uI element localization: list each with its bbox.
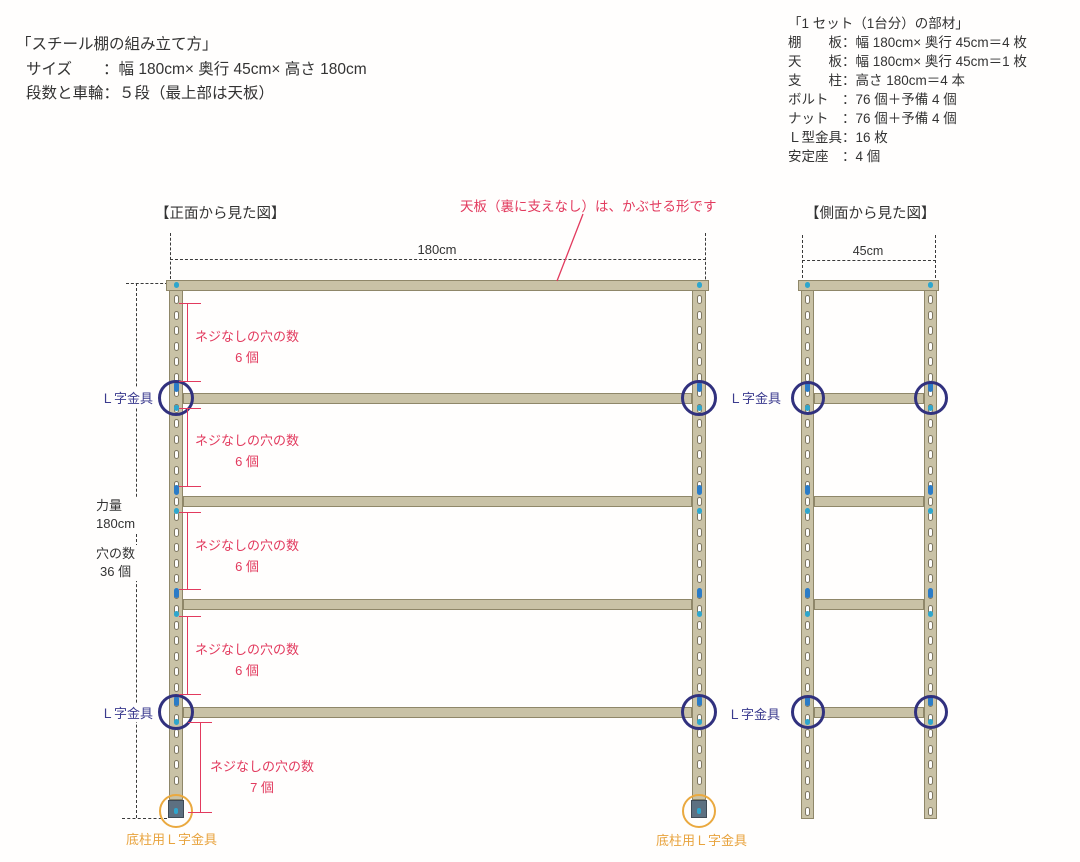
bracket-tick: [179, 694, 201, 695]
front-post-slot: [697, 466, 702, 475]
front-bolt-lower: [697, 611, 702, 617]
front-bolt-lower: [174, 508, 179, 514]
side-post-slot: [805, 311, 810, 320]
tier-spec-line: 段数と車輪：５段（最上部は天板）: [26, 82, 274, 106]
side-post-slot: [805, 543, 810, 552]
side-post-slot: [805, 326, 810, 335]
front-post-slot: [697, 621, 702, 630]
front-post-slot: [174, 326, 179, 335]
hole-count-bracket: [187, 408, 188, 486]
side-post-slot: [805, 729, 810, 738]
front-shelf-board: [183, 393, 692, 404]
front-post-slot: [697, 652, 702, 661]
parts-list-item: 支 柱：高さ 180cm＝4 本: [788, 71, 1027, 90]
l-bracket-circle: [791, 381, 825, 415]
bracket-tick: [188, 812, 212, 813]
front-view-heading: 【正面から見た図】: [155, 202, 286, 223]
bracket-tick: [179, 303, 201, 304]
front-post-slot: [174, 745, 179, 754]
side-post-slot: [805, 791, 810, 800]
side-post-slot: [805, 652, 810, 661]
side-top-bolt: [928, 282, 933, 288]
side-post-slot: [928, 636, 933, 645]
front-post-slot: [174, 760, 179, 769]
front-post-slot: [697, 729, 702, 738]
front-post-slot: [697, 357, 702, 366]
front-post-slot: [174, 559, 179, 568]
front-post-slot: [697, 636, 702, 645]
hole-count-note: ネジなしの穴の数6 個: [195, 430, 299, 472]
front-post-slot: [174, 683, 179, 692]
front-bolt-upper: [697, 588, 702, 598]
hole-count-note: ネジなしの穴の数6 個: [195, 535, 299, 577]
l-bracket-circle: [158, 380, 194, 416]
side-post-slot: [805, 419, 810, 428]
side-post-slot: [928, 466, 933, 475]
side-post-slot: [928, 729, 933, 738]
side-view-heading: 【側面から見た図】: [805, 202, 936, 223]
side-post-slot: [805, 528, 810, 537]
side-post-slot: [928, 807, 933, 816]
side-post-slot: [928, 559, 933, 568]
side-post-slot: [805, 636, 810, 645]
side-width-dim-line: [802, 260, 936, 261]
hole-count-value: 6 個: [195, 347, 299, 368]
side-post-slot: [805, 776, 810, 785]
side-post-slot: [805, 667, 810, 676]
parts-list-item: ナット ：76 個＋予備 4 個: [788, 109, 1027, 128]
l-bracket-circle: [914, 381, 948, 415]
side-post-slot: [928, 311, 933, 320]
side-bolt-lower: [805, 508, 810, 514]
parts-list-item: 天 板：幅 180cm× 奥行 45cm＝1 枚: [788, 52, 1027, 71]
side-post-slot: [928, 357, 933, 366]
front-post-slot: [174, 419, 179, 428]
front-post-slot: [697, 435, 702, 444]
page-title: 「スチール棚の組み立て方」: [16, 33, 218, 57]
front-bolt-lower: [174, 611, 179, 617]
side-post-slot: [805, 295, 810, 304]
side-shelf-board: [814, 496, 924, 507]
side-post-slot: [928, 497, 933, 506]
front-width-label: 180cm: [417, 242, 456, 257]
bracket-tick: [179, 512, 201, 513]
bracket-tick: [179, 381, 201, 382]
front-post-slot: [697, 342, 702, 351]
side-post-slot: [928, 326, 933, 335]
assembly-instructions-sheet: ネジなしの穴の数6 個ネジなしの穴の数6 個ネジなしの穴の数6 個ネジなしの穴の…: [0, 0, 1080, 862]
front-shelf-board: [183, 599, 692, 610]
front-post-slot: [697, 295, 702, 304]
top-board-note: 天板（裏に支えなし）は、かぶせる形です: [460, 195, 717, 215]
l-bracket-circle: [681, 380, 717, 416]
side-width-label: 45cm: [853, 244, 884, 258]
base-bracket-label: 底柱用Ｌ字金具: [126, 829, 217, 848]
side-post-slot: [928, 450, 933, 459]
foot-circle: [682, 794, 716, 828]
l-bracket-circle: [681, 694, 717, 730]
side-post-slot: [805, 760, 810, 769]
front-post-slot: [174, 357, 179, 366]
front-dim-ext-left: [170, 233, 171, 279]
front-post-slot: [697, 683, 702, 692]
front-bolt-upper: [174, 485, 179, 495]
front-post-slot: [174, 295, 179, 304]
front-post-slot: [174, 497, 179, 506]
front-top-board: [166, 280, 709, 291]
side-post-slot: [928, 683, 933, 692]
side-post-slot: [928, 791, 933, 800]
side-post-slot: [805, 559, 810, 568]
front-post-slot: [174, 342, 179, 351]
l-bracket-label: Ｌ字金具: [727, 704, 781, 723]
side-top-board: [798, 280, 939, 291]
height-dim-label: 力量 180cm: [94, 497, 137, 533]
front-post-slot: [697, 745, 702, 754]
front-post-slot: [174, 667, 179, 676]
front-post-slot: [174, 528, 179, 537]
front-post-slot: [697, 776, 702, 785]
parts-list-item: 安定座 ：4 個: [788, 147, 1027, 166]
front-post-slot: [174, 652, 179, 661]
front-post-slot: [697, 667, 702, 676]
side-post-slot: [805, 435, 810, 444]
front-post-slot: [174, 636, 179, 645]
side-top-bolt: [805, 282, 810, 288]
l-bracket-circle: [914, 695, 948, 729]
side-bolt-lower: [805, 611, 810, 617]
hole-count-note: ネジなしの穴の数6 個: [195, 639, 299, 681]
side-post-slot: [928, 760, 933, 769]
side-shelf-board: [814, 707, 924, 718]
side-shelf-board: [814, 393, 924, 404]
side-post-slot: [805, 357, 810, 366]
front-post-slot: [697, 528, 702, 537]
front-post-slot: [697, 559, 702, 568]
front-post-slot: [697, 326, 702, 335]
front-bolt-upper: [174, 588, 179, 598]
front-post-slot: [174, 574, 179, 583]
side-post-slot: [928, 667, 933, 676]
side-post-slot: [805, 574, 810, 583]
front-post-slot: [697, 574, 702, 583]
front-shelf-board: [183, 707, 692, 718]
l-bracket-circle: [791, 695, 825, 729]
hole-count-value: 6 個: [195, 451, 299, 472]
side-shelf-board: [814, 599, 924, 610]
l-bracket-label: Ｌ字金具: [100, 703, 154, 722]
side-bolt-upper: [928, 485, 933, 495]
side-post-slot: [928, 295, 933, 304]
bracket-tick: [188, 722, 212, 723]
side-post-slot: [928, 435, 933, 444]
foot-circle: [159, 794, 193, 828]
side-post-slot: [805, 807, 810, 816]
front-bolt-upper: [697, 485, 702, 495]
side-post-slot: [805, 466, 810, 475]
side-post-slot: [928, 745, 933, 754]
hole-count-value: 7 個: [210, 777, 314, 798]
front-top-bolt: [174, 282, 179, 288]
l-bracket-label: Ｌ字金具: [728, 388, 782, 407]
front-bolt-lower: [697, 508, 702, 514]
bracket-tick: [179, 589, 201, 590]
height-dim-top-tick: [126, 283, 168, 284]
bracket-tick: [179, 486, 201, 487]
side-post-slot: [805, 450, 810, 459]
front-post-slot: [174, 311, 179, 320]
front-post-slot: [174, 466, 179, 475]
hole-count-note: ネジなしの穴の数6 個: [195, 326, 299, 368]
hole-count-bracket: [200, 722, 201, 812]
side-post-slot: [805, 621, 810, 630]
side-bolt-upper: [805, 588, 810, 598]
side-bolt-lower: [928, 508, 933, 514]
side-post-slot: [928, 543, 933, 552]
side-post-slot: [928, 652, 933, 661]
front-post-slot: [697, 450, 702, 459]
front-post-slot: [174, 543, 179, 552]
side-post-slot: [928, 776, 933, 785]
front-shelf-board: [183, 496, 692, 507]
front-post-slot: [174, 621, 179, 630]
side-post-slot: [805, 497, 810, 506]
side-post-slot: [928, 419, 933, 428]
front-post-slot: [697, 760, 702, 769]
parts-list-item: ボルト ：76 個＋予備 4 個: [788, 90, 1027, 109]
parts-list-item: 棚 板：幅 180cm× 奥行 45cm＝4 枚: [788, 33, 1027, 52]
hole-count-note: ネジなしの穴の数7 個: [210, 756, 314, 798]
front-post-slot: [697, 311, 702, 320]
side-post-slot: [805, 745, 810, 754]
parts-list-item: Ｌ型金具：16 枚: [788, 128, 1027, 147]
front-post-slot: [697, 497, 702, 506]
front-post-slot: [174, 435, 179, 444]
front-post-slot: [174, 729, 179, 738]
side-bolt-upper: [805, 485, 810, 495]
front-post-slot: [174, 776, 179, 785]
side-post-slot: [928, 574, 933, 583]
parts-list-title: 「1 セット（1台分）の部材」: [788, 14, 1027, 33]
l-bracket-circle: [158, 694, 194, 730]
front-top-bolt: [697, 282, 702, 288]
bracket-tick: [179, 616, 201, 617]
side-post-slot: [928, 342, 933, 351]
hole-count-bracket: [187, 512, 188, 589]
hole-count-value: 6 個: [195, 556, 299, 577]
hole-count-value: 6 個: [195, 660, 299, 681]
hole-total-label: 穴の数 36 個: [94, 545, 137, 581]
side-bolt-lower: [928, 611, 933, 617]
l-bracket-label: Ｌ字金具: [100, 388, 154, 407]
front-post-slot: [697, 543, 702, 552]
hole-count-bracket: [187, 303, 188, 381]
size-spec-line: サイズ ：幅 180cm× 奥行 45cm× 高さ 180cm: [26, 58, 367, 82]
front-post-slot: [174, 450, 179, 459]
side-post-slot: [928, 621, 933, 630]
side-post-slot: [805, 683, 810, 692]
side-post-slot: [928, 528, 933, 537]
side-bolt-upper: [928, 588, 933, 598]
front-post-slot: [697, 419, 702, 428]
side-post-slot: [805, 342, 810, 351]
base-bracket-label: 底柱用Ｌ字金具: [656, 830, 747, 849]
bracket-tick: [179, 408, 201, 409]
parts-list: 「1 セット（1台分）の部材」 棚 板：幅 180cm× 奥行 45cm＝4 枚…: [788, 14, 1027, 166]
hole-count-bracket: [187, 616, 188, 694]
front-width-dim-line: [170, 259, 706, 260]
